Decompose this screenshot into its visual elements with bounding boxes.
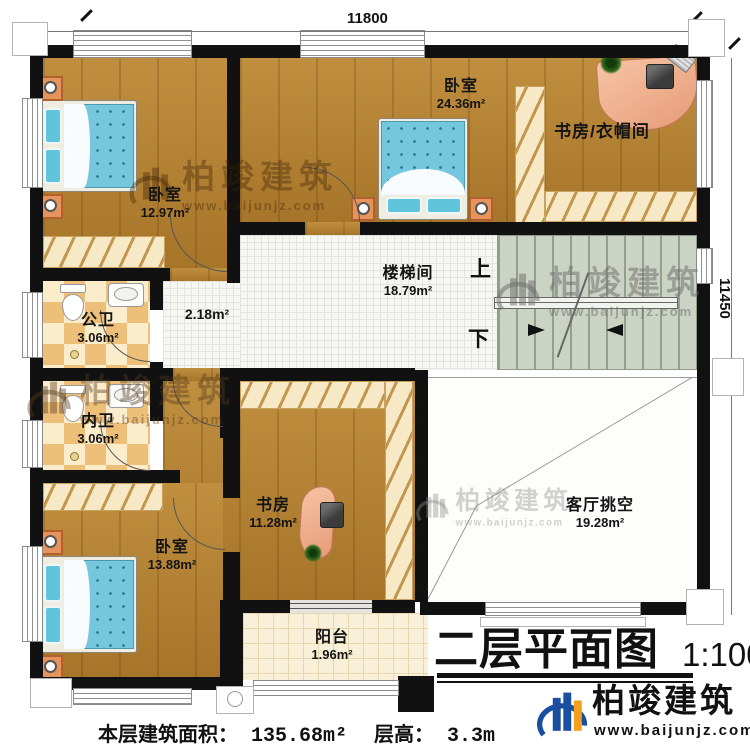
pillow <box>44 108 62 144</box>
grid-reference-box <box>686 589 724 625</box>
stair-up-label: 上 <box>470 253 491 283</box>
wall <box>30 268 170 281</box>
window <box>22 420 43 468</box>
stair-hall-floor <box>240 235 497 370</box>
floor-area-label: 本层建筑面积： <box>98 718 238 747</box>
scale-label: 1:100 <box>682 638 750 671</box>
computer-icon <box>646 64 674 89</box>
window <box>253 680 399 696</box>
stair-down-label: 下 <box>468 323 489 353</box>
title-underline <box>437 673 693 678</box>
dimension-line-right <box>731 58 732 615</box>
floor-height-label: 层高： <box>374 718 434 747</box>
bed-sheet <box>64 104 90 188</box>
floor-drain-icon <box>70 452 79 461</box>
toilet-icon <box>60 385 86 394</box>
pillar <box>398 676 434 712</box>
dimension-tick <box>80 9 93 22</box>
closet <box>545 191 697 222</box>
door-sill <box>173 368 220 381</box>
room-label-stairwell: 楼梯间 18.79m² <box>382 264 433 299</box>
page-title: 二层平面图 <box>434 628 659 672</box>
dimension-tick <box>728 37 741 50</box>
footer-stats: 本层建筑面积： 135.68m² 层高： 3.3m <box>98 718 495 748</box>
window <box>696 80 713 188</box>
closet <box>385 381 413 600</box>
wall <box>415 370 428 602</box>
room-label-private-bathroom: 内卫 3.06m² <box>77 412 118 447</box>
window <box>22 98 43 188</box>
stair-handrail <box>494 297 678 309</box>
floor-plan: 柏竣建筑 www.baijunjz.com 柏竣建筑 www.baijunjz.… <box>0 0 750 754</box>
window <box>300 30 425 58</box>
brand-name: 柏竣建筑 <box>592 684 736 717</box>
wall <box>220 368 240 438</box>
grid-reference-box <box>712 358 744 396</box>
door-sill <box>305 222 360 235</box>
window <box>696 248 713 284</box>
dimension-top-label: 11800 <box>347 10 388 27</box>
wall <box>360 222 710 235</box>
window <box>73 688 192 705</box>
wall <box>243 600 290 613</box>
room-label-living-room-void: 客厅挑空 19.28m² <box>566 496 634 531</box>
room-label-public-bathroom: 公卫 3.06m² <box>77 311 118 346</box>
sliding-door <box>290 600 372 613</box>
wall <box>30 368 163 381</box>
room-label-hallway: 2.18m² <box>185 306 229 323</box>
wall <box>150 368 173 381</box>
wall <box>223 438 240 498</box>
plant-icon <box>304 544 322 562</box>
wall <box>30 470 180 483</box>
floor-height-value: 3.3m <box>447 725 495 748</box>
toilet-icon <box>60 284 86 293</box>
floor-area-value: 135.68m² <box>251 725 347 748</box>
closet <box>43 483 163 511</box>
room-label-study: 书房 11.28m² <box>249 496 297 531</box>
room-label-bedroom-top-left: 卧室 12.97m² <box>141 186 189 221</box>
room-label-balcony: 阳台 1.96m² <box>311 628 352 663</box>
window <box>485 602 641 616</box>
grid-reference-box <box>688 19 725 57</box>
grid-reference-box <box>30 678 72 708</box>
bed-sheet <box>64 560 90 649</box>
nightstand <box>469 197 493 221</box>
pillow <box>44 564 62 602</box>
computer-icon <box>320 502 344 528</box>
sink-icon <box>108 283 144 307</box>
column-symbol <box>216 686 254 714</box>
closet <box>515 86 545 223</box>
stair-arrow <box>528 324 545 336</box>
sink-icon <box>108 384 144 408</box>
hallway-floor <box>163 281 240 368</box>
dimension-right-label: 11450 <box>716 278 733 319</box>
floor-drain-icon <box>70 350 79 359</box>
wall <box>227 45 240 283</box>
brand-website: www.baijunjz.com <box>594 722 750 739</box>
window <box>22 546 43 642</box>
window <box>22 292 43 358</box>
brand-logo-icon <box>534 686 590 744</box>
wall <box>240 222 305 235</box>
wall <box>220 600 243 690</box>
pillow <box>44 148 62 184</box>
dimension-line-top <box>30 31 710 32</box>
stair-arrow <box>606 324 623 336</box>
window <box>73 30 192 58</box>
closet <box>240 381 385 409</box>
wall <box>372 600 415 613</box>
wall <box>150 281 163 310</box>
pillow <box>426 197 462 214</box>
closet <box>43 236 165 268</box>
room-label-bedroom-top-center: 卧室 24.36m² <box>437 77 485 112</box>
pillow <box>386 197 422 214</box>
room-label-study-cloakroom: 书房/衣帽间 <box>554 122 650 142</box>
grid-reference-box <box>12 22 48 56</box>
room-label-bedroom-bottom-left: 卧室 13.88m² <box>148 538 196 573</box>
living-room-void-area <box>428 377 697 602</box>
pillow <box>44 606 62 644</box>
wall <box>240 368 415 381</box>
